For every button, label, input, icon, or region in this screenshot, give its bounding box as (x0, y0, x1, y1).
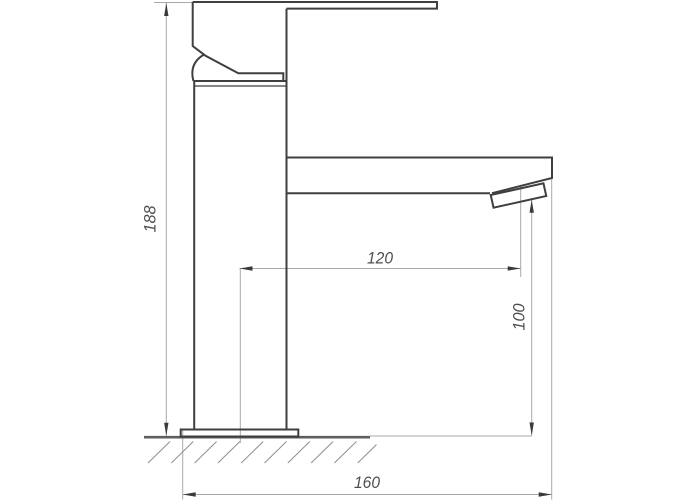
hatch-line (311, 442, 333, 464)
handle-body (193, 2, 284, 81)
reach-dim-label: 120 (367, 249, 393, 268)
dimension-annotations: 188 120 100 160 (141, 3, 552, 500)
reach-dim-arrow-right (508, 266, 521, 270)
spout (287, 158, 553, 194)
hatch-line (358, 445, 377, 464)
depth-dim-arrow-left (183, 492, 196, 496)
depth-dim-label: 160 (354, 473, 380, 492)
outlet-height-arrow-down (530, 423, 534, 436)
handle-lever (193, 2, 437, 9)
height-dim-arrow-up (164, 3, 168, 16)
drawing-canvas: 188 120 100 160 (0, 0, 700, 500)
hatch-line (334, 442, 356, 464)
mounting-surface (144, 437, 377, 463)
hatch-line (218, 442, 240, 464)
hatch-line (288, 442, 310, 464)
height-dim-label: 188 (141, 205, 160, 233)
hatch-line (148, 442, 170, 464)
hatch-line (265, 442, 287, 464)
faucet (181, 2, 552, 437)
depth-dim-arrow-right (539, 492, 552, 496)
base-flange (181, 430, 299, 437)
faucet-technical-drawing: 188 120 100 160 (0, 0, 700, 500)
outlet-height-arrow-up (530, 200, 534, 213)
outlet-height-dim-label: 100 (510, 303, 529, 331)
handle-pivot-arc (192, 55, 203, 81)
hatch-line (195, 442, 217, 464)
reach-dim-arrow-left (240, 266, 253, 270)
hatch-line (241, 442, 263, 464)
height-dim-arrow-down (164, 423, 168, 436)
